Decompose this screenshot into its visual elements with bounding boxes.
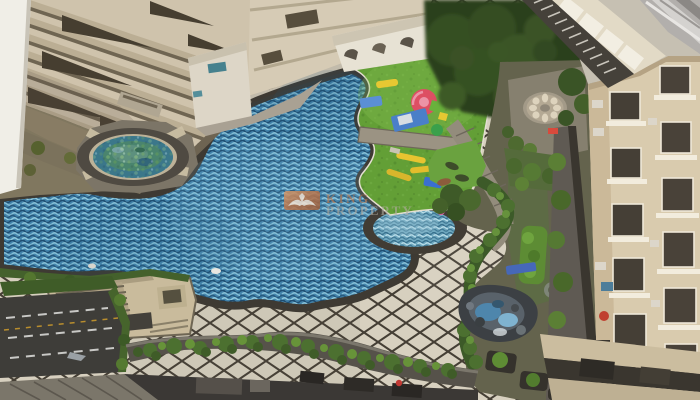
svg-text:PROPERTY: PROPERTY: [326, 203, 414, 218]
